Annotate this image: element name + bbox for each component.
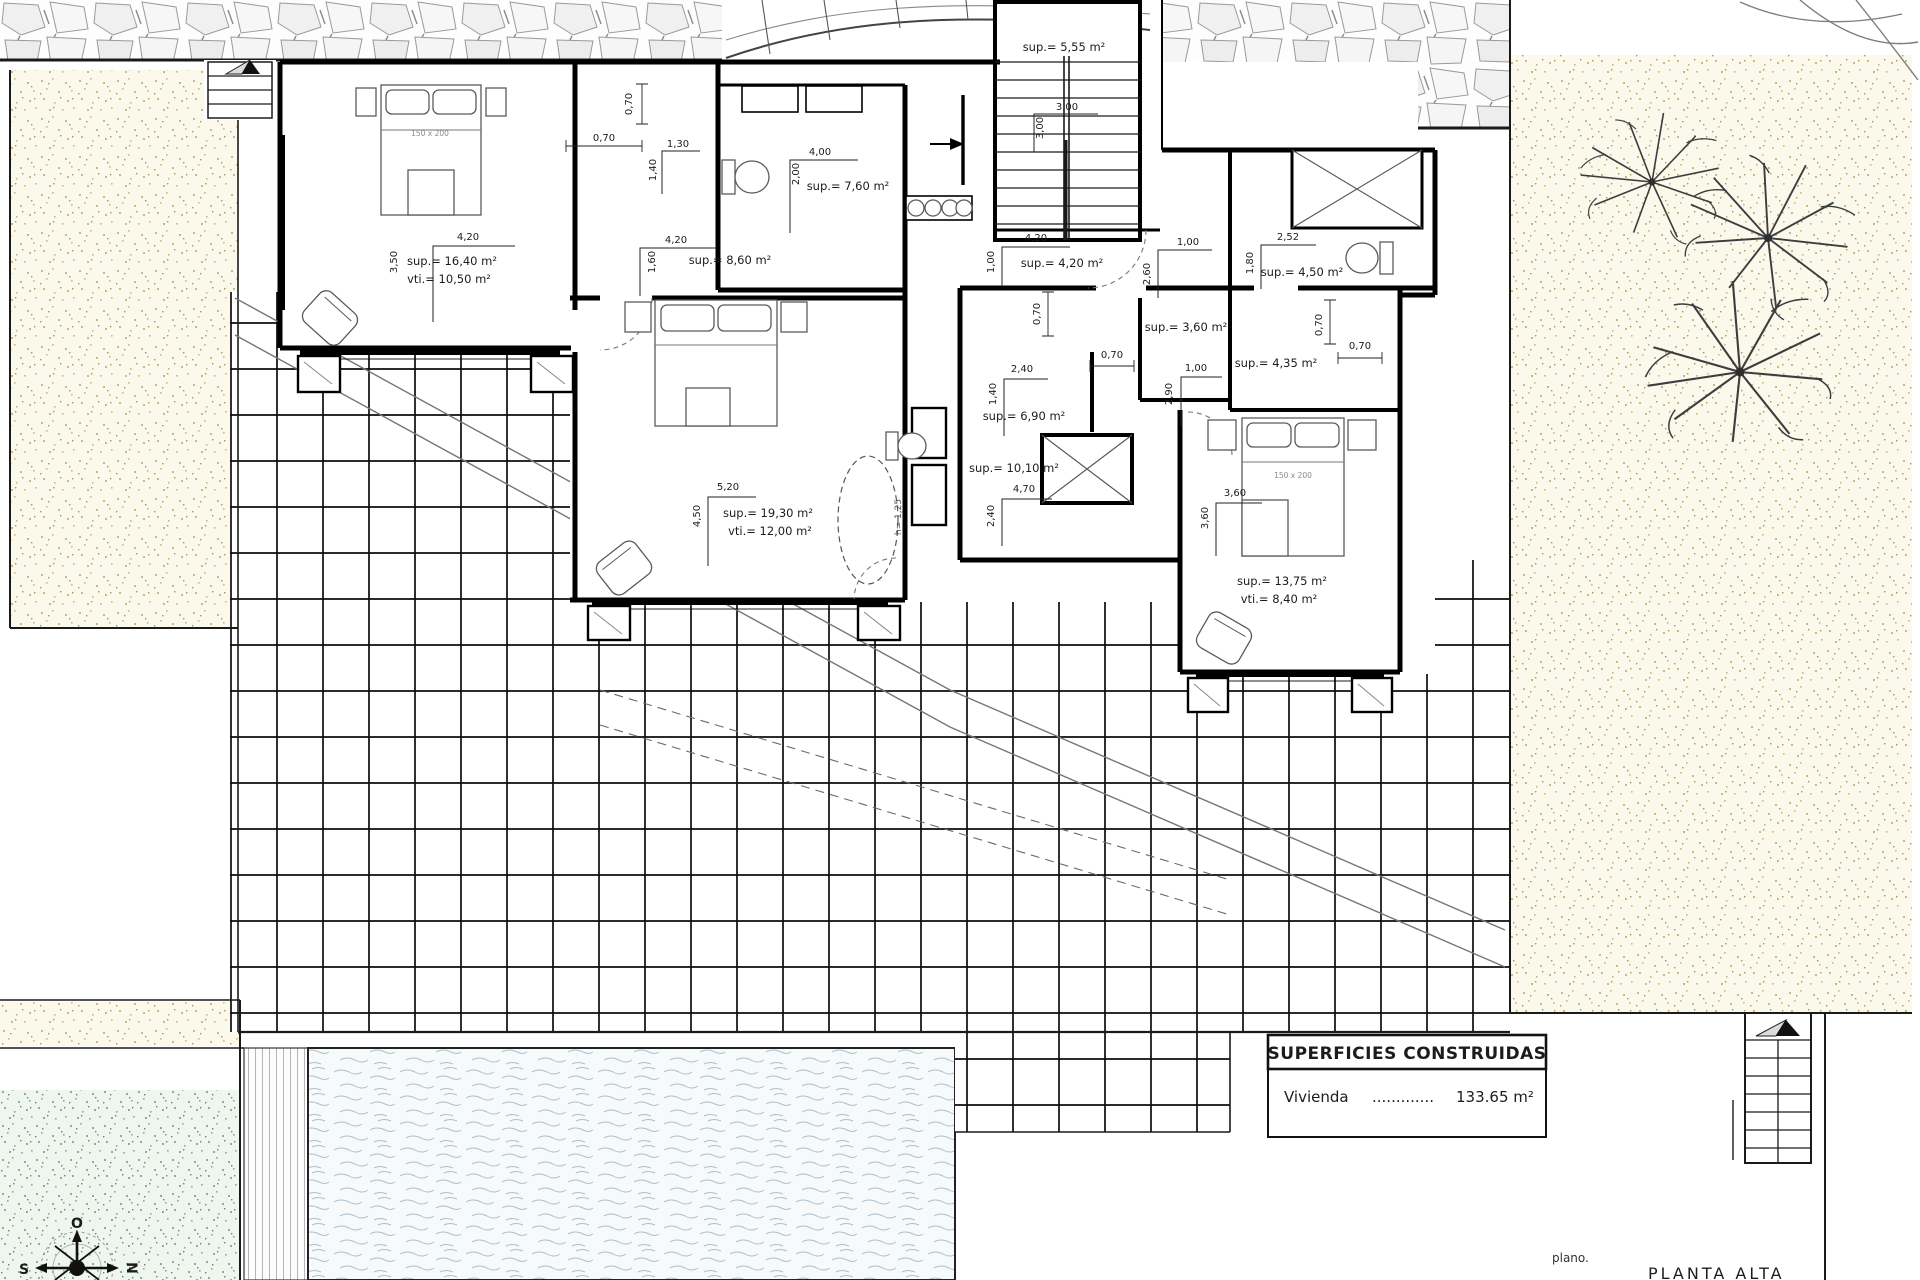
wardrobe-x: [1292, 150, 1422, 228]
garden-left: [10, 70, 238, 628]
room-area-label: sup.= 6,90 m²: [983, 409, 1066, 423]
dim-label: 2,52: [1277, 232, 1299, 243]
compass-letter-right: N: [123, 1262, 139, 1274]
dim-label: 3,50: [389, 251, 400, 273]
room-area-label: sup.= 8,60 m²: [689, 253, 772, 267]
room-area-label: vti.= 12,00 m²: [728, 524, 812, 538]
dim-label: 2,90: [1164, 383, 1175, 405]
footer-plan-name: PLANTA ALTA: [1648, 1264, 1785, 1280]
dim-label: 2,40: [1011, 364, 1033, 375]
closet-unit: [806, 86, 862, 112]
dim-label: 1,40: [988, 383, 999, 405]
dim-label: 4,20: [1025, 233, 1047, 244]
terrace-tiles-lower: [955, 1032, 1230, 1132]
dim-label: 5,20: [717, 482, 739, 493]
room-area-label: sup.= 4,20 m²: [1021, 256, 1104, 270]
pool-deck-hatch: [244, 1048, 308, 1280]
room-area-label: sup.= 19,30 m²: [723, 506, 813, 520]
garden-strip-bottom-left: [0, 1002, 240, 1046]
title-block-item-label: Vivienda: [1284, 1088, 1349, 1106]
dim-label: 2,40: [986, 505, 997, 527]
dim-label: 0,70: [593, 133, 615, 144]
toilet-bano1: [722, 160, 769, 194]
room-area-label: sup.= 16,40 m²: [407, 254, 497, 268]
dim-label: 0,70: [1314, 314, 1325, 336]
dim-label: 3,00: [1056, 102, 1078, 113]
dim-label: 3,60: [1200, 507, 1211, 529]
garden-right: [1510, 55, 1912, 1013]
dim-label: 4,20: [457, 232, 479, 243]
dim-label: 1,40: [648, 159, 659, 181]
toilet-bano2: [1346, 242, 1393, 274]
dim-label: 3,60: [1224, 488, 1246, 499]
bed-size-label: 150 x 200: [411, 129, 449, 138]
dim-label: 1,60: [647, 251, 658, 273]
dim-label: 0,70: [624, 93, 635, 115]
title-block-item-dots: .............: [1372, 1088, 1434, 1106]
title-block: SUPERFICIES CONSTRUIDAS Vivienda .......…: [1268, 1035, 1547, 1137]
room-area-label: sup.= 7,60 m²: [807, 179, 890, 193]
dim-label: 0,70: [1101, 350, 1123, 361]
footer-plano-label: plano.: [1552, 1251, 1589, 1265]
dim-label: 1,00: [986, 251, 997, 273]
title-block-item-value: 133.65 m²: [1456, 1088, 1534, 1106]
dim-label: 3,00: [1035, 117, 1046, 139]
room-area-label: sup.= 13,75 m²: [1237, 574, 1327, 588]
room-area-label: vti.= 8,40 m²: [1241, 592, 1318, 606]
dim-label: 1,30: [667, 139, 689, 150]
dim-label: 2,60: [1142, 263, 1153, 285]
closet-unit: [742, 86, 798, 112]
dim-label: 1,00: [1185, 363, 1207, 374]
dim-label: 1,00: [1177, 237, 1199, 248]
exterior-stair-bottom-right: [1745, 1013, 1811, 1163]
floor-plan-drawing: 4,20 3,50 0,70 0,70 1,30 1,40 4,20 1,60 …: [0, 0, 1920, 1280]
dim-label: 4,00: [809, 147, 831, 158]
room-area-label: sup.= 5,55 m²: [1023, 40, 1106, 54]
swimming-pool: [308, 1048, 955, 1280]
toilet-bano4: [886, 432, 926, 460]
dim-label: 2,00: [791, 163, 802, 185]
title-block-header: SUPERFICIES CONSTRUIDAS: [1268, 1044, 1547, 1064]
compass-letter-left: S: [19, 1262, 29, 1278]
entry-steps: [208, 60, 272, 118]
compass-letter-top: O: [71, 1216, 83, 1232]
dim-label: 4,20: [665, 235, 687, 246]
floor-plan-sheet: 4,20 3,50 0,70 0,70 1,30 1,40 4,20 1,60 …: [0, 0, 1920, 1280]
room-area-label: sup.= 4,50 m²: [1261, 265, 1344, 279]
stone-paving-top-left: [0, 0, 722, 60]
room-area-label: sup.= 4,35 m²: [1235, 356, 1318, 370]
bed-size-label: 150 x 200: [1274, 471, 1312, 480]
dim-label: 4,50: [692, 505, 703, 527]
dim-label: 4,70: [1013, 484, 1035, 495]
dim-label: 0,70: [1032, 303, 1043, 325]
dim-label: 1,80: [1245, 252, 1256, 274]
railing-circles: [906, 196, 972, 220]
dim-label: 0,70: [1349, 341, 1371, 352]
void-height-label: h= 1,25: [894, 499, 904, 535]
room-area-label: sup.= 3,60 m²: [1145, 320, 1228, 334]
shelf-unit: [912, 465, 946, 525]
lawn-bottom-left: [0, 1090, 240, 1280]
room-area-label: sup.= 10,10 m²: [969, 461, 1059, 475]
room-area-label: vti.= 10,50 m²: [407, 272, 491, 286]
